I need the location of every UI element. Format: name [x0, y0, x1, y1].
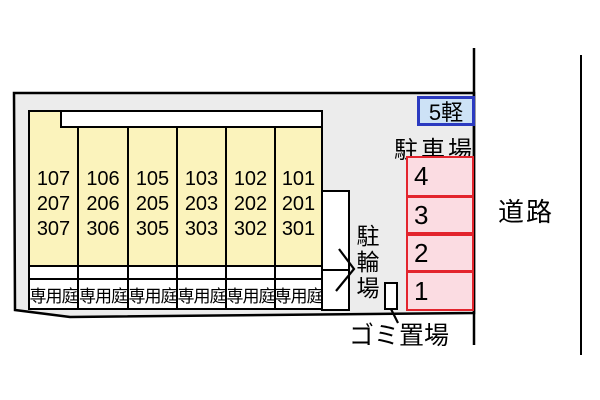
- room-number: 206: [86, 192, 119, 217]
- parking-space: 2: [406, 234, 474, 272]
- garden-label: 専用庭: [30, 280, 77, 308]
- garden-label: 専用庭: [79, 280, 127, 308]
- room-number: 303: [185, 217, 218, 242]
- bicycle-shed-divider: [323, 269, 348, 271]
- unit-cell: 103 203 303: [178, 128, 225, 265]
- parking-space-number: 2: [414, 238, 428, 269]
- room-number: 202: [234, 192, 267, 217]
- parking-space: 4: [406, 156, 474, 197]
- parking-space-number: 4: [414, 161, 428, 192]
- unit-cell: 101 201 301: [276, 128, 321, 265]
- room-number: 203: [185, 192, 218, 217]
- room-number: 101: [282, 167, 315, 192]
- unit-cell: 107 207 307: [30, 128, 77, 265]
- bicycle-shed: [321, 190, 350, 311]
- kei-parking-space: 5軽: [417, 96, 475, 126]
- room-number: 207: [37, 192, 70, 217]
- building: 107 207 307 106 206 306 105 205 305 103 …: [28, 110, 323, 310]
- room-number: 105: [136, 167, 169, 192]
- parking-space-number: 1: [414, 276, 428, 307]
- room-number: 107: [37, 167, 70, 192]
- site-plan: 107 207 307 106 206 306 105 205 305 103 …: [0, 0, 600, 400]
- room-number: 106: [86, 167, 119, 192]
- room-number: 305: [136, 217, 169, 242]
- road-label: 道路: [498, 192, 554, 229]
- bicycle-area-label: 駐輪場: [353, 224, 379, 314]
- room-number: 301: [282, 217, 315, 242]
- garden-label: 専用庭: [178, 280, 225, 308]
- room-number: 201: [282, 192, 315, 217]
- garden-label: 専用庭: [129, 280, 176, 308]
- room-number: 307: [37, 217, 70, 242]
- room-number: 103: [185, 167, 218, 192]
- parking-space-number: 3: [414, 200, 428, 231]
- corridor-strip: [60, 112, 321, 128]
- room-number: 302: [234, 217, 267, 242]
- garbage-area-label: ゴミ置場: [342, 316, 456, 352]
- room-number: 102: [234, 167, 267, 192]
- garden-label: 専用庭: [227, 280, 274, 308]
- unit-cell: 106 206 306: [79, 128, 127, 265]
- room-number: 306: [86, 217, 119, 242]
- parking-space: 3: [406, 196, 474, 234]
- garbage-box: [384, 282, 398, 310]
- parking-space: 1: [406, 271, 474, 311]
- garden-label: 専用庭: [276, 280, 321, 308]
- unit-cell: 102 202 302: [227, 128, 274, 265]
- room-number: 205: [136, 192, 169, 217]
- unit-cell: 105 205 305: [129, 128, 176, 265]
